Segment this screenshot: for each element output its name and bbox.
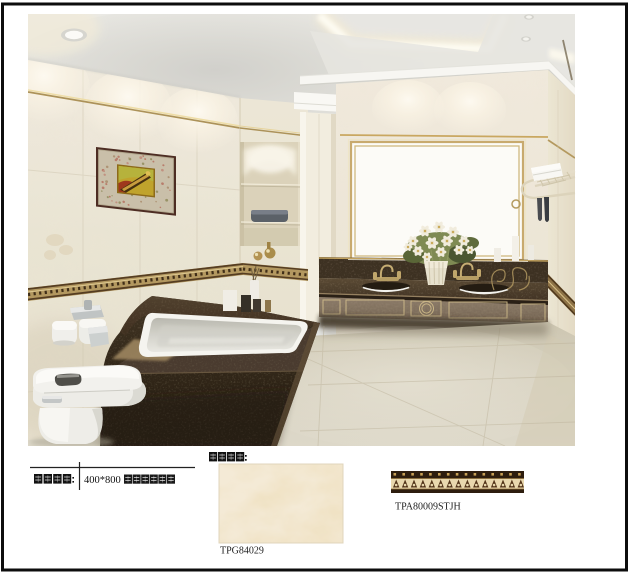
svg-text:TPA80009STJH: TPA80009STJH [395,502,461,513]
svg-text:400*800: 400*800 [84,475,121,486]
svg-text:TPG84029: TPG84029 [220,546,264,557]
